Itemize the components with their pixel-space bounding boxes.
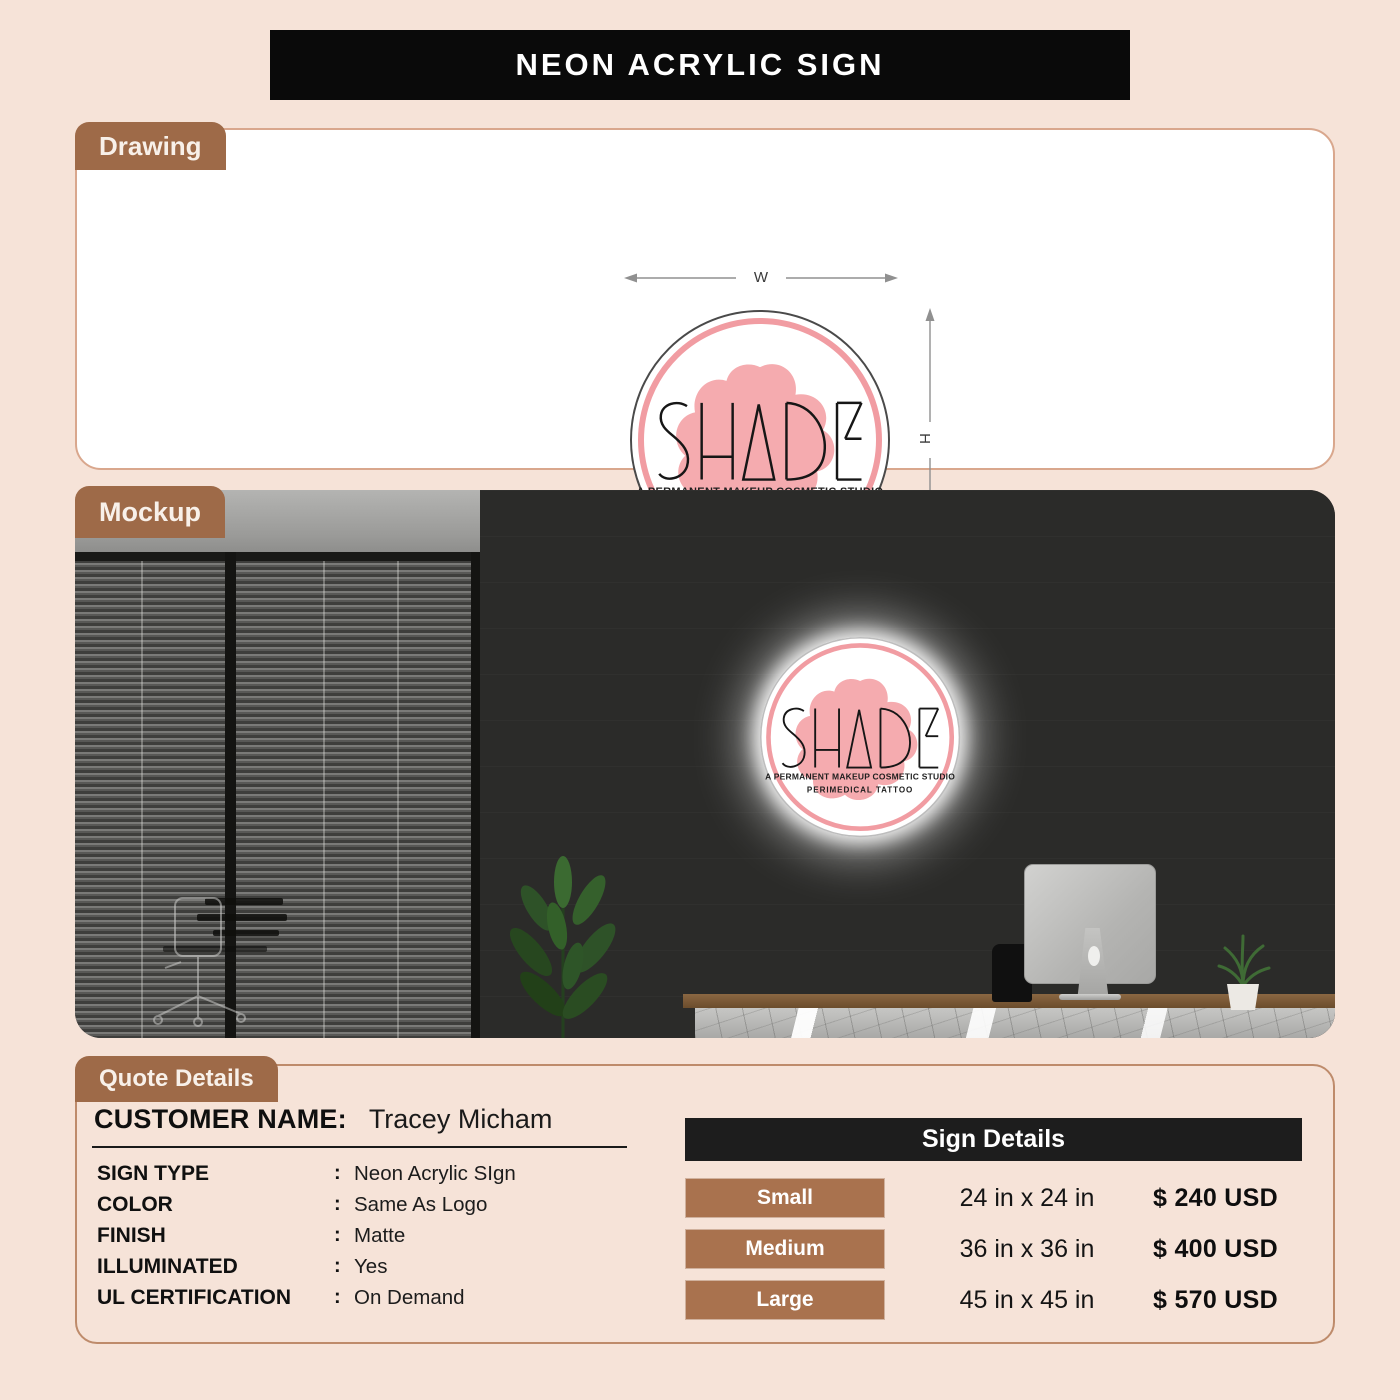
- large-price: $ 570 USD: [1153, 1280, 1308, 1320]
- medium-dimensions: 36 in x 36 in: [907, 1229, 1147, 1269]
- window-mullion: [471, 552, 480, 1038]
- desk-marble-front: [695, 1008, 1335, 1038]
- neon-sign-mockup: SHADE A PERMANENT MAKEUP COSMETIC STUDIO…: [760, 637, 960, 837]
- spec-row-ul-certification: UL CERTIFICATION : On Demand: [97, 1282, 516, 1313]
- width-label: W: [622, 269, 900, 286]
- sign-size-row-small: Small 24 in x 24 in $ 240 USD: [685, 1178, 1302, 1218]
- page-title: NEON ACRYLIC SIGN: [515, 47, 884, 83]
- blinds-headrail: [75, 552, 480, 561]
- shade-logo-mockup: SHADE A PERMANENT MAKEUP COSMETIC STUDIO…: [760, 637, 960, 837]
- small-dimensions: 24 in x 24 in: [907, 1178, 1147, 1218]
- spec-row-sign-type: SIGN TYPE : Neon Acrylic SIgn: [97, 1158, 516, 1189]
- title-banner: NEON ACRYLIC SIGN: [270, 30, 1130, 100]
- customer-name-label: CUSTOMER NAME:: [94, 1104, 347, 1135]
- drawing-section-tab: Drawing: [75, 122, 226, 170]
- monitor-base: [1059, 994, 1121, 1000]
- quote-sheet-page: NEON ACRYLIC SIGN Drawing W H: [0, 0, 1400, 1400]
- large-size-button[interactable]: Large: [685, 1280, 885, 1320]
- brand-text: SHADE: [781, 765, 794, 769]
- shade-wordmark: SHADE: [656, 398, 868, 482]
- drawing-section-label: Drawing: [99, 131, 202, 162]
- blind-cord: [323, 561, 325, 1038]
- quote-section-label: Quote Details: [99, 1065, 254, 1093]
- logo-tagline-2: PERIMEDICAL TATTOO: [762, 786, 959, 795]
- sign-size-row-medium: Medium 36 in x 36 in $ 400 USD: [685, 1229, 1302, 1269]
- quote-section-tab: Quote Details: [75, 1056, 278, 1102]
- height-label: H: [916, 433, 933, 444]
- width-dimension: W: [622, 269, 900, 287]
- customer-name-row: CUSTOMER NAME: Tracey Micham: [94, 1104, 552, 1135]
- sign-size-row-large: Large 45 in x 45 in $ 570 USD: [685, 1280, 1302, 1320]
- spec-row-illuminated: ILLUMINATED : Yes: [97, 1251, 516, 1282]
- medium-price: $ 400 USD: [1153, 1229, 1308, 1269]
- sign-details-title: Sign Details: [922, 1125, 1065, 1154]
- stand-cable-hole: [1088, 946, 1100, 966]
- chair-silhouette: [123, 888, 293, 1038]
- spec-row-finish: FINISH : Matte: [97, 1220, 516, 1251]
- quote-details-panel: CUSTOMER NAME: Tracey Micham SIGN TYPE :…: [75, 1064, 1335, 1344]
- spec-row-color: COLOR : Same As Logo: [97, 1189, 516, 1220]
- shade-wordmark: SHADE: [780, 705, 943, 770]
- brand-text: SHADE: [658, 476, 676, 482]
- small-price: $ 240 USD: [1153, 1178, 1308, 1218]
- large-plant: [493, 848, 633, 1038]
- small-size-button[interactable]: Small: [685, 1178, 885, 1218]
- large-dimensions: 45 in x 45 in: [907, 1280, 1147, 1320]
- mockup-section-label: Mockup: [99, 497, 201, 528]
- drawing-panel: W H: [75, 128, 1335, 470]
- logo-tagline-1: A PERMANENT MAKEUP COSMETIC STUDIO: [762, 773, 959, 782]
- customer-name-value: Tracey Micham: [369, 1104, 553, 1135]
- mockup-panel: SHADE A PERMANENT MAKEUP COSMETIC STUDIO…: [75, 490, 1335, 1038]
- mockup-section-tab: Mockup: [75, 486, 225, 538]
- sign-details-header: Sign Details: [685, 1118, 1302, 1161]
- small-desk-plant: [1213, 928, 1273, 1012]
- spec-list: SIGN TYPE : Neon Acrylic SIgn COLOR : Sa…: [97, 1158, 516, 1313]
- customer-underline: [92, 1146, 627, 1148]
- medium-size-button[interactable]: Medium: [685, 1229, 885, 1269]
- blind-cord: [397, 561, 399, 1038]
